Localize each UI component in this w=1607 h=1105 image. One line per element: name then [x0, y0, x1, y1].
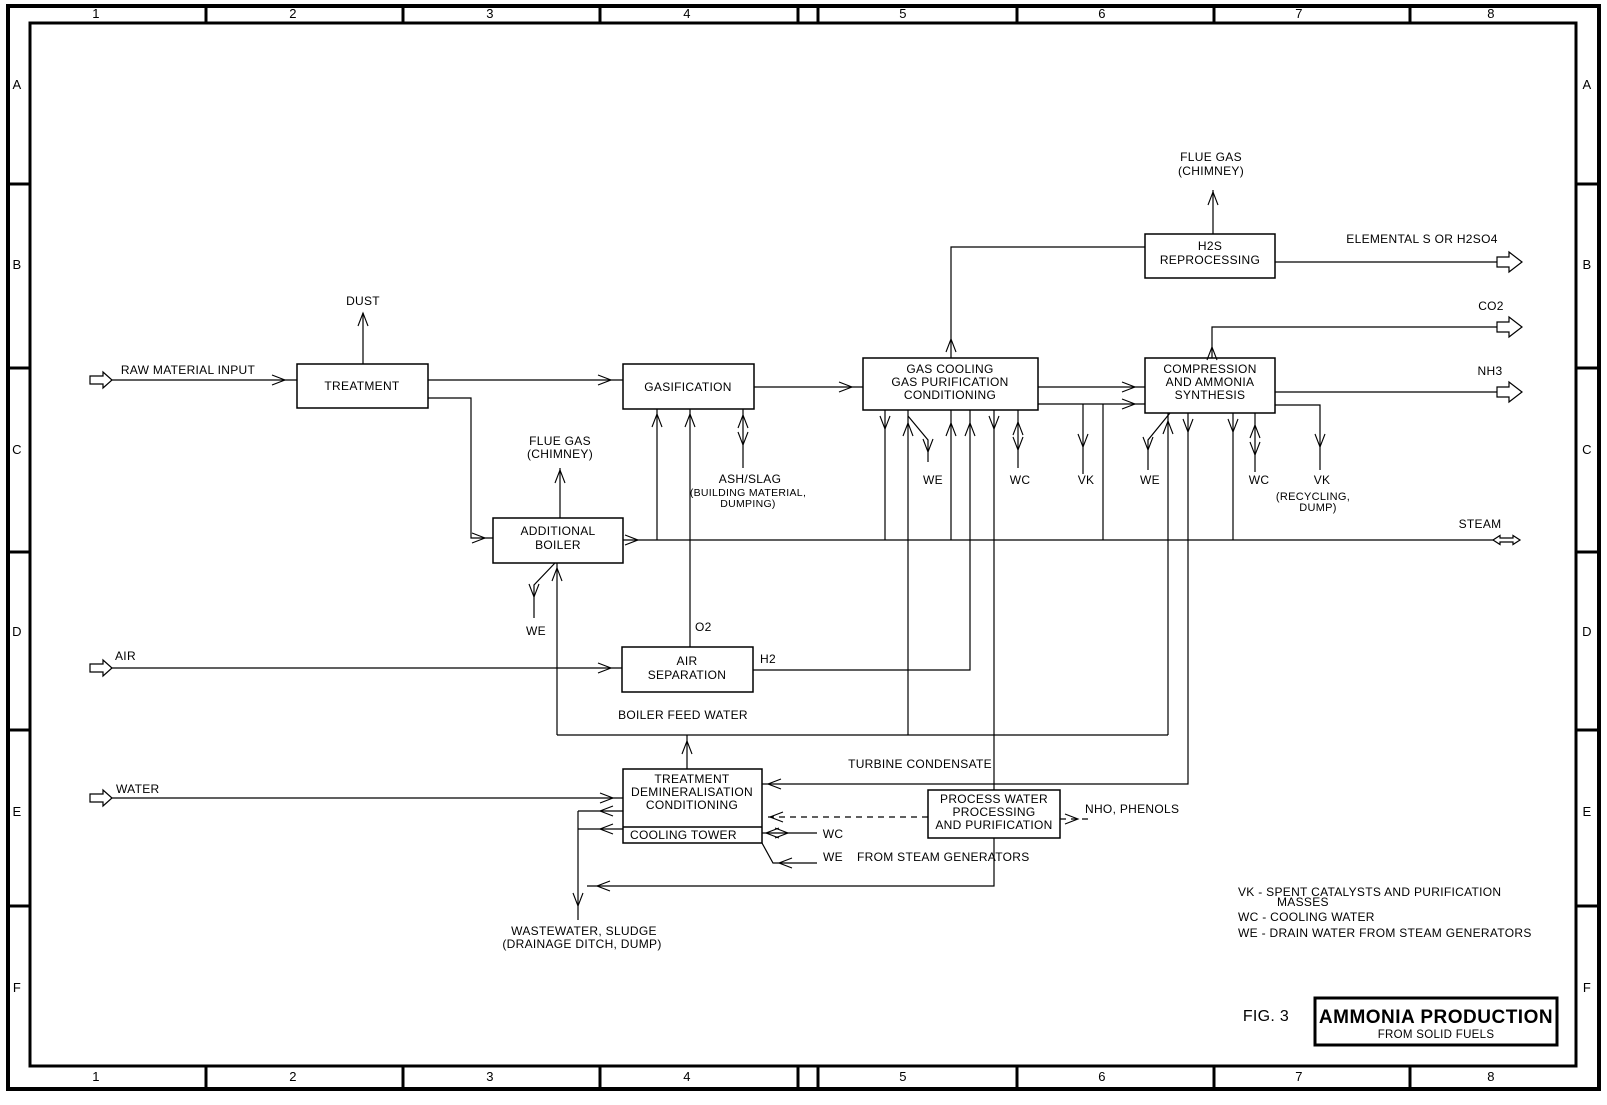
- col-label: 7: [1295, 6, 1303, 21]
- box-air-separation-label: SEPARATION: [648, 668, 727, 682]
- col-label: 5: [899, 6, 907, 21]
- frame-row-labels: A B C D E F A B C D E F: [12, 77, 1592, 995]
- input-arrow-raw-material: [90, 372, 112, 388]
- title-block: FIG. 3 AMMONIA PRODUCTION FROM SOLID FUE…: [1243, 998, 1557, 1045]
- row-label: B: [13, 257, 22, 272]
- box-compression-label: SYNTHESIS: [1175, 388, 1246, 402]
- row-label: F: [13, 980, 21, 995]
- frame-tick: [8, 184, 30, 906]
- label-boiler-feed-water: BOILER FEED WATER: [618, 708, 748, 722]
- col-label: 4: [683, 1069, 691, 1084]
- label-water: WATER: [116, 782, 160, 796]
- box-gas-cooling: GAS COOLING GAS PURIFICATION CONDITIONIN…: [863, 358, 1038, 410]
- label-nh3: NH3: [1478, 364, 1503, 378]
- output-arrow-steam: [1493, 536, 1520, 545]
- box-process-water: PROCESS WATER PROCESSING AND PURIFICATIO…: [928, 790, 1060, 838]
- label-we-coolingtower: WE: [823, 850, 843, 864]
- label-steam: STEAM: [1459, 517, 1502, 531]
- label-o2: O2: [695, 620, 712, 634]
- box-air-separation-label: AIR: [677, 654, 698, 668]
- col-label: 7: [1295, 1069, 1303, 1084]
- row-label: E: [13, 804, 22, 819]
- box-gasification: GASIFICATION: [623, 364, 754, 409]
- box-h2s-label: H2S: [1198, 239, 1222, 253]
- label-elemental-s: ELEMENTAL S OR H2SO4: [1346, 232, 1497, 246]
- box-gas-cooling-label: CONDITIONING: [904, 388, 996, 402]
- box-compression-label: COMPRESSION: [1163, 362, 1256, 376]
- diagram-canvas: 1 2 3 4 5 6 7 8 1 2 3 4 5 6 7 8 A B C D …: [0, 0, 1607, 1100]
- legend-line-wc: WC - COOLING WATER: [1238, 910, 1375, 924]
- col-label: 6: [1098, 6, 1106, 21]
- legend-line-vk-cont: MASSES: [1277, 895, 1329, 909]
- box-gas-cooling-label: GAS COOLING: [906, 362, 993, 376]
- line-we-coolingtower: [762, 843, 817, 863]
- box-treatment-label: TREATMENT: [324, 379, 400, 393]
- label-raw-material: RAW MATERIAL INPUT: [121, 363, 256, 377]
- label-dust: DUST: [346, 294, 380, 308]
- output-arrow-elemental-s: [1497, 252, 1522, 272]
- box-h2s-reprocessing: H2S REPROCESSING: [1145, 234, 1275, 278]
- col-label: 1: [92, 1069, 100, 1084]
- frame-tick: [1576, 184, 1598, 906]
- frame-tick: [206, 8, 1410, 23]
- label-h2: H2: [760, 652, 776, 666]
- row-label: D: [1582, 624, 1592, 639]
- col-label: 8: [1487, 1069, 1495, 1084]
- box-demineralisation-label: DEMINERALISATION: [631, 785, 753, 799]
- output-arrow-nh3: [1497, 382, 1522, 402]
- box-process-water-label: PROCESS WATER: [940, 792, 1048, 806]
- row-label: C: [1582, 442, 1592, 457]
- output-arrow-co2: [1497, 317, 1522, 337]
- line-vk-compression: [1275, 405, 1320, 470]
- terminal-arrows: [90, 252, 1522, 806]
- row-label: A: [13, 77, 22, 92]
- label-wc-coolingtower: WC: [823, 827, 844, 841]
- label-flue-gas-h2s: (CHIMNEY): [1178, 164, 1244, 178]
- label-wastewater: WASTEWATER, SLUDGE: [511, 924, 657, 938]
- label-co2: CO2: [1478, 299, 1504, 313]
- process-flow-diagram: 1 2 3 4 5 6 7 8 1 2 3 4 5 6 7 8 A B C D …: [0, 0, 1607, 1100]
- label-we-boiler: WE: [526, 624, 546, 638]
- row-label: E: [1583, 804, 1592, 819]
- label-air: AIR: [115, 649, 136, 663]
- box-process-water-label: AND PURIFICATION: [935, 818, 1052, 832]
- box-compression-label: AND AMMONIA: [1166, 375, 1255, 389]
- col-label: 3: [486, 1069, 494, 1084]
- row-label: D: [12, 624, 22, 639]
- box-compression: COMPRESSION AND AMMONIA SYNTHESIS: [1145, 358, 1275, 413]
- stream-labels: RAW MATERIAL INPUT DUST FLUE GAS (CHIMNE…: [115, 150, 1504, 951]
- row-label: B: [1583, 257, 1592, 272]
- line-treatment-to-boiler: [428, 398, 493, 538]
- col-label: 5: [899, 1069, 907, 1084]
- label-we-gascooling: WE: [923, 473, 943, 487]
- box-additional-boiler: ADDITIONAL BOILER: [493, 518, 623, 563]
- label-wc-compression: WC: [1249, 473, 1270, 487]
- flow-lines: [110, 190, 1497, 920]
- arrowheads: [272, 192, 1325, 906]
- row-label: F: [1583, 980, 1591, 995]
- box-demineralisation-label: CONDITIONING: [646, 798, 738, 812]
- line-turbine-condensate: [762, 413, 1188, 784]
- col-label: 2: [289, 1069, 297, 1084]
- box-gasification-label: GASIFICATION: [644, 380, 731, 394]
- label-flue-gas-boiler: (CHIMNEY): [527, 447, 593, 461]
- col-label: 3: [486, 6, 494, 21]
- drawing-title: AMMONIA PRODUCTION: [1319, 1007, 1553, 1028]
- label-ash-slag: ASH/SLAG: [719, 472, 781, 486]
- label-flue-gas-boiler: FLUE GAS: [529, 434, 591, 448]
- label-flue-gas-h2s: FLUE GAS: [1180, 150, 1242, 164]
- line-gascooling-to-h2s: [951, 247, 1145, 358]
- box-cooling-tower-label: COOLING TOWER: [630, 828, 737, 842]
- input-arrow-air: [90, 660, 112, 676]
- label-vk-gascooling: VK: [1078, 473, 1095, 487]
- col-label: 2: [289, 6, 297, 21]
- col-label: 1: [92, 6, 100, 21]
- legend: VK - SPENT CATALYSTS AND PURIFICATION MA…: [1238, 885, 1532, 940]
- box-air-separation: AIR SEPARATION: [622, 647, 753, 692]
- label-wc-gascooling: WC: [1010, 473, 1031, 487]
- box-demineralisation-label: TREATMENT: [654, 772, 730, 786]
- col-label: 8: [1487, 6, 1495, 21]
- line-we-gascooling: [908, 416, 928, 462]
- row-label: C: [12, 442, 22, 457]
- label-vk-recycling: DUMP): [1299, 502, 1337, 514]
- box-demineralisation: TREATMENT DEMINERALISATION CONDITIONING …: [623, 769, 762, 843]
- label-from-steam-generators: FROM STEAM GENERATORS: [857, 850, 1030, 864]
- label-nho-phenols: NHO, PHENOLS: [1085, 802, 1179, 816]
- figure-number: FIG. 3: [1243, 1008, 1289, 1025]
- box-additional-boiler-label: BOILER: [535, 538, 581, 552]
- label-vk-recycling: VK: [1314, 473, 1331, 487]
- legend-line-we: WE - DRAIN WATER FROM STEAM GENERATORS: [1238, 926, 1532, 940]
- col-label: 4: [683, 6, 691, 21]
- label-turbine-condensate: TURBINE CONDENSATE: [848, 757, 992, 771]
- input-arrow-water: [90, 790, 112, 806]
- line-we-boiler: [534, 563, 555, 618]
- line-co2: [1212, 327, 1497, 358]
- label-wastewater: (DRAINAGE DITCH, DUMP): [502, 937, 661, 951]
- box-additional-boiler-label: ADDITIONAL: [520, 524, 595, 538]
- box-gas-cooling-label: GAS PURIFICATION: [891, 375, 1008, 389]
- box-process-water-label: PROCESSING: [952, 805, 1035, 819]
- label-ash-slag: DUMPING): [720, 498, 775, 510]
- row-label: A: [1583, 77, 1592, 92]
- process-boxes: TREATMENT GASIFICATION GAS COOLING GAS P…: [297, 234, 1275, 843]
- frame-tick: [206, 1066, 1410, 1087]
- box-h2s-label: REPROCESSING: [1160, 253, 1260, 267]
- label-we-compression: WE: [1140, 473, 1160, 487]
- box-treatment: TREATMENT: [297, 364, 428, 408]
- col-label: 6: [1098, 1069, 1106, 1084]
- drawing-subtitle: FROM SOLID FUELS: [1378, 1029, 1495, 1041]
